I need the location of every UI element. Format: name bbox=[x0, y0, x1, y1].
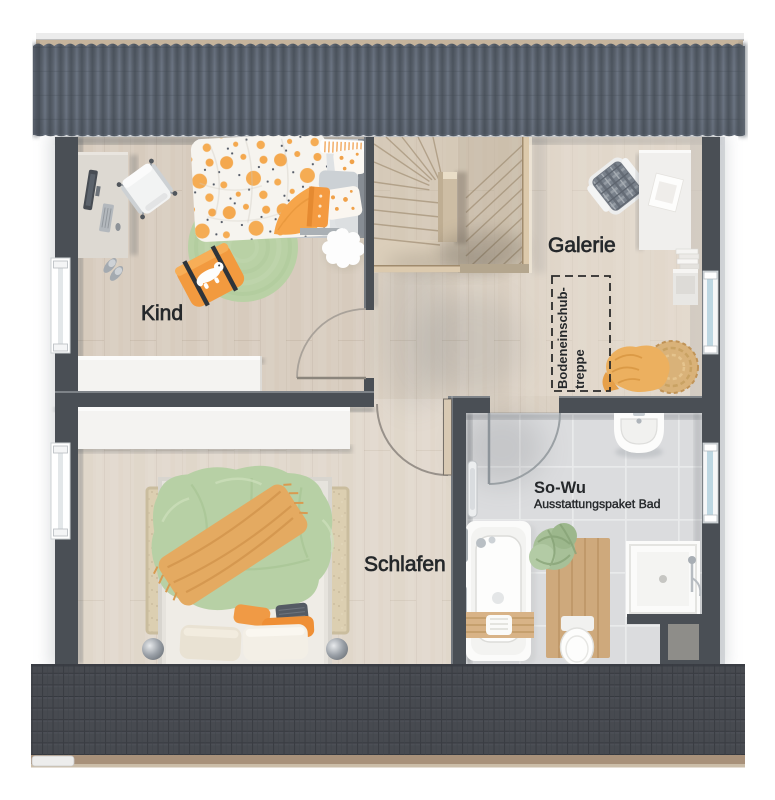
svg-text:Bodeneinschub-: Bodeneinschub- bbox=[555, 287, 570, 389]
svg-text:Schlafen: Schlafen bbox=[364, 553, 446, 576]
svg-text:Kind: Kind bbox=[141, 302, 183, 325]
svg-text:Ausstattungspaket Bad: Ausstattungspaket Bad bbox=[534, 497, 661, 511]
svg-text:Galerie: Galerie bbox=[548, 234, 616, 257]
svg-text:So-Wu: So-Wu bbox=[534, 479, 586, 497]
svg-text:treppe: treppe bbox=[572, 349, 587, 389]
